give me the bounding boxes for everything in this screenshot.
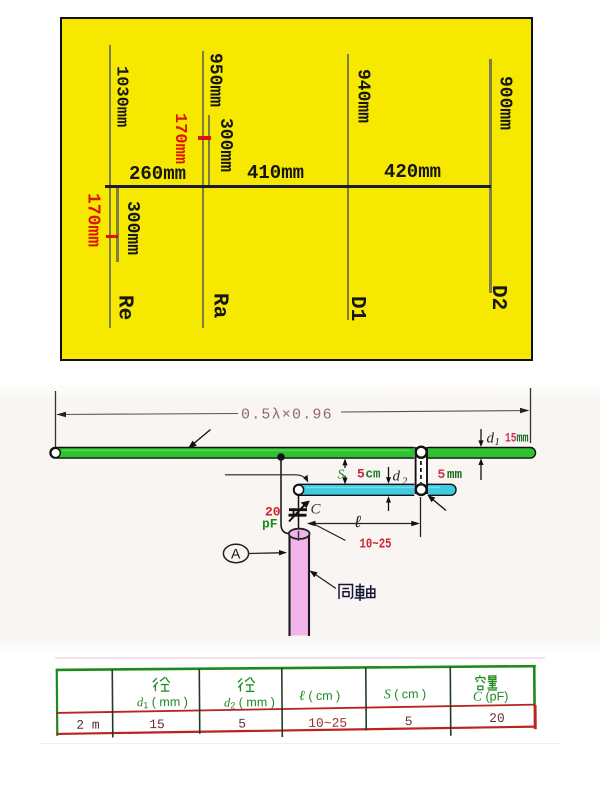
- svg-text:5: 5: [405, 714, 413, 729]
- svg-text:20: 20: [489, 711, 505, 726]
- svg-text:15: 15: [149, 717, 165, 732]
- svg-text:C (pF): C (pF): [473, 688, 509, 703]
- svg-text:2 m: 2 m: [76, 718, 100, 733]
- svg-text:5: 5: [238, 716, 246, 731]
- svg-text:10~25: 10~25: [308, 716, 347, 731]
- svg-text:S ( cm ): S ( cm ): [384, 686, 426, 701]
- svg-text:d2 ( mm ): d2 ( mm ): [224, 695, 275, 710]
- svg-text:ℓ ( cm ): ℓ ( cm ): [299, 689, 340, 704]
- svg-text:d1 ( mm ): d1 ( mm ): [137, 695, 188, 710]
